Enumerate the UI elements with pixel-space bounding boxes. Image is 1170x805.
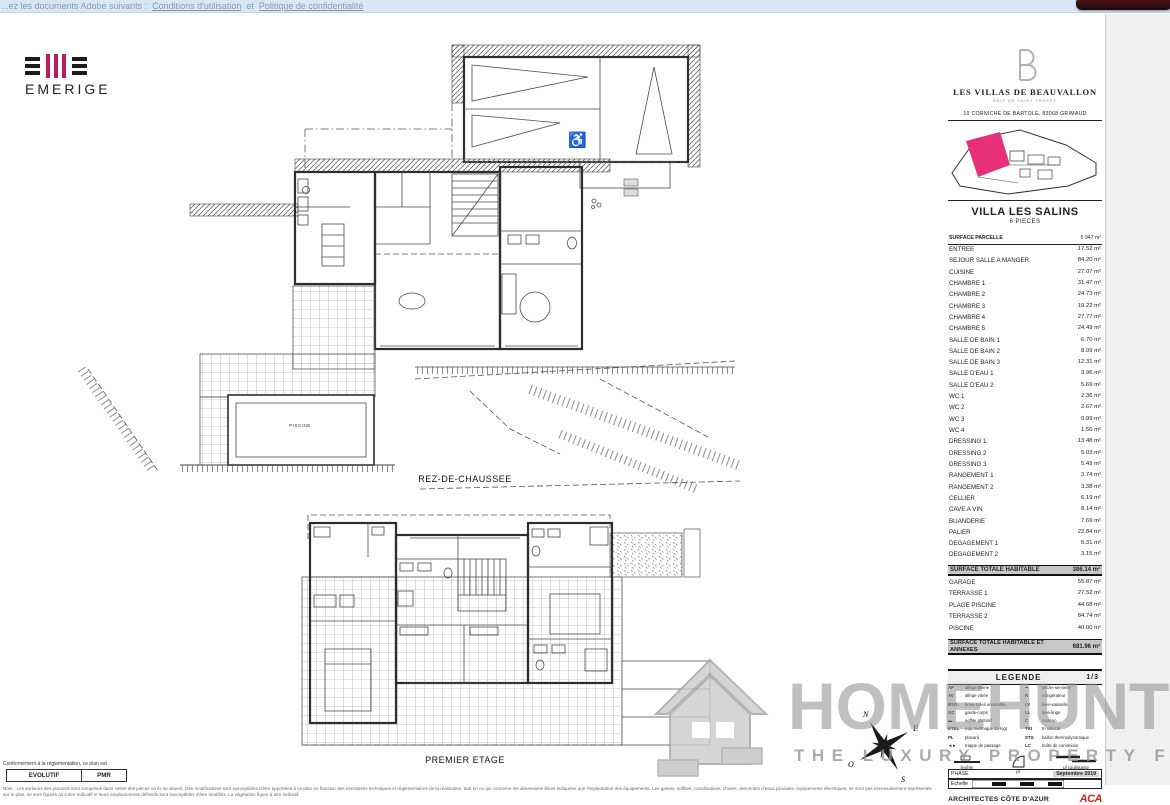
kitchen-island bbox=[322, 224, 344, 266]
privacy-link[interactable]: Politique de confidentialité bbox=[259, 1, 364, 11]
legend-item: PLplacard bbox=[948, 735, 1021, 743]
compass-s: S bbox=[901, 775, 905, 784]
room-row: CHAMBRE 224.73 m² bbox=[948, 291, 1102, 302]
development-subtitle: BAIE DE SAINT TROPEZ bbox=[948, 99, 1102, 103]
villa-type: 6 PIECES bbox=[948, 219, 1102, 225]
legend-item: ETELesp. technique du logt bbox=[948, 726, 1021, 734]
browser-consent-bar: ...ez les documents Adobe suivants : Con… bbox=[0, 0, 1170, 13]
annex-row: TERRASSE 127.52 m² bbox=[948, 590, 1102, 601]
total-all-row: SURFACE TOTALE HABITABLE ET ANNEXES 681.… bbox=[948, 639, 1102, 655]
annex-surface-table: GARAGE55.87 m²TERRASSE 127.52 m²PLAGE PI… bbox=[948, 579, 1102, 636]
legend-item: ◄►trappe de passage bbox=[948, 743, 1021, 751]
legend-grid: APallège pleineAVallège vitréeBSObrise-s… bbox=[948, 685, 1102, 751]
ground-floor-label: REZ-DE-CHAUSSEE bbox=[380, 474, 550, 484]
legend-item: AVallège vitrée bbox=[948, 693, 1021, 701]
stairs bbox=[452, 174, 498, 236]
annex-row: PLAGE PISCINE44.68 m² bbox=[948, 602, 1102, 613]
legend-item: LCboîte de connexion bbox=[1025, 743, 1098, 751]
room-row: SALLE D'EAU 25.69 m² bbox=[948, 382, 1102, 393]
plan-document-page: EMERIGE ♿ bbox=[0, 14, 1105, 785]
room-row: SALLE DE BAIN 16.70 m² bbox=[948, 337, 1102, 348]
first-floor-label: PREMIER ETAGE bbox=[390, 755, 540, 765]
plan-disclaimer: Note : Les surfaces des placards sont co… bbox=[3, 786, 938, 798]
room-row: RANGEMENT 13.74 m² bbox=[948, 472, 1102, 483]
room-surface-table: ENTREE17.52 m²SEJOUR SALLE A MANGER84.20… bbox=[948, 246, 1102, 563]
legend-header: LEGENDE 1/3 bbox=[948, 669, 1102, 685]
annex-row: TERRASSE 284.74 m² bbox=[948, 613, 1102, 624]
room-row: CHAMBRE 319.22 m² bbox=[948, 303, 1102, 314]
legend-item: STGballon thermodynamique bbox=[1025, 735, 1098, 743]
architects-row: ARCHITECTES CÔTE D'AZUR ACA bbox=[948, 793, 1102, 805]
room-row: ENTREE17.52 m² bbox=[948, 246, 1102, 257]
pmr-box: PMR bbox=[82, 769, 127, 782]
room-row: DEGAGEMENT 23.15 m² bbox=[948, 551, 1102, 562]
legend-left-column: APallège pleineAVallège vitréeBSObrise-s… bbox=[948, 685, 1021, 751]
scale-row: Echelle bbox=[948, 779, 1102, 789]
room-row: CHAMBRE 131.47 m² bbox=[948, 280, 1102, 291]
room-row: CUISINE27.07 m² bbox=[948, 269, 1102, 280]
legend-right-column: ━sèche-servietteRréfrigérateurLVlave-vai… bbox=[1025, 685, 1098, 751]
legend-item: LLlave-linge bbox=[1025, 710, 1098, 718]
conformity-boxes: EVOLUTIF PMR bbox=[6, 769, 127, 782]
room-row: RANGEMENT 23.38 m² bbox=[948, 484, 1102, 495]
room-row: WC 41.56 m² bbox=[948, 427, 1102, 438]
room-row: SALLE DE BAIN 28.09 m² bbox=[948, 348, 1102, 359]
legend-item: GCgarde-corps bbox=[948, 710, 1021, 718]
legend-title: LEGENDE bbox=[996, 673, 1042, 682]
window-icon bbox=[952, 754, 982, 764]
room-row: DRESSING 25.03 m² bbox=[948, 450, 1102, 461]
legend-item: Ccuisson bbox=[1025, 718, 1098, 726]
architects-name: ARCHITECTES CÔTE D'AZUR bbox=[948, 796, 1049, 803]
evolutif-box: EVOLUTIF bbox=[6, 769, 82, 782]
compass-o: O bbox=[848, 760, 854, 769]
room-row: SALLE DE BAIN 312.31 m² bbox=[948, 359, 1102, 370]
development-address: 10 CORNICHE DE BARTOLE, 83068 GRIMAUD bbox=[948, 111, 1102, 121]
room-row: DEGAGEMENT 15.31 m² bbox=[948, 540, 1102, 551]
aca-logo: ACA bbox=[1080, 793, 1102, 805]
page-margin-strip bbox=[1105, 14, 1170, 785]
wc-icon bbox=[568, 237, 577, 249]
room-row: SEJOUR SALLE A MANGER84.20 m² bbox=[948, 257, 1102, 268]
site-plan-thumbnail bbox=[948, 123, 1102, 201]
highlighted-lot bbox=[966, 132, 1010, 177]
first-floor-plan bbox=[280, 499, 740, 769]
parcel-surface-row: SURFACE PARCELLE 5 947 m² bbox=[948, 233, 1102, 245]
total-habitable-row: SURFACE TOTALE HABITABLE 386.14 m² bbox=[948, 565, 1102, 576]
legend-item: BSObrise-soleil orientable bbox=[948, 702, 1021, 710]
room-row: BUANDERIE7.69 m² bbox=[948, 518, 1102, 529]
door-swing-icon bbox=[1011, 754, 1025, 768]
annex-row: PISCINE40.00 m² bbox=[948, 625, 1102, 636]
legend-item: APallège pleine bbox=[948, 685, 1021, 693]
room-row: WC 30.99 m² bbox=[948, 416, 1102, 427]
room-row: SALLE D'EAU 13.96 m² bbox=[948, 370, 1102, 381]
consent-text: ...ez les documents Adobe suivants : bbox=[1, 1, 147, 11]
villa-name: VILLA LES SALINS bbox=[948, 206, 1102, 218]
phase-row: PHASE Septembre 2019 bbox=[948, 769, 1102, 779]
compass-n: N bbox=[862, 710, 869, 719]
room-row: CHAMBRE 524.49 m² bbox=[948, 325, 1102, 336]
pool bbox=[228, 395, 374, 465]
room-row: CAVE A VIN8.14 m² bbox=[948, 506, 1102, 517]
page-number: 1/3 bbox=[1086, 674, 1099, 681]
legend-item: Rréfrigérateur bbox=[1025, 693, 1098, 701]
legend-item: LVlave-vaisselle bbox=[1025, 702, 1098, 710]
room-row: DRESSING 113.48 m² bbox=[948, 438, 1102, 449]
room-row: CHAMBRE 427.77 m² bbox=[948, 314, 1102, 325]
compass-e: E bbox=[912, 724, 918, 733]
browser-notification-button[interactable] bbox=[1076, 0, 1170, 10]
legend-item: TRItri sélectif bbox=[1025, 726, 1098, 734]
conformity-note: Conformément à la réglementation, ce pla… bbox=[3, 761, 110, 767]
beauvallon-monogram-icon bbox=[1006, 47, 1046, 85]
room-row: CELLIER6.19 m² bbox=[948, 495, 1102, 506]
sliding-door-icon bbox=[1054, 754, 1098, 764]
room-row: WC 22.67 m² bbox=[948, 404, 1102, 415]
terrace-and-pool bbox=[200, 286, 375, 465]
room-row: WC 12.36 m² bbox=[948, 393, 1102, 404]
legend-item: ▬soffite plafond bbox=[948, 718, 1021, 726]
development-name: LES VILLAS DE BEAUVALLON bbox=[948, 87, 1102, 97]
terms-link[interactable]: Conditions d'utilisation bbox=[152, 1, 241, 11]
room-row: PALIER22.84 m² bbox=[948, 529, 1102, 540]
wheelchair-icon: ♿ bbox=[568, 131, 587, 149]
legend-item: ━sèche-serviette bbox=[1025, 685, 1098, 693]
pool-label: PISCINE bbox=[260, 423, 340, 428]
annex-row: GARAGE55.87 m² bbox=[948, 579, 1102, 590]
consent-separator: et bbox=[246, 1, 254, 11]
ground-floor-plan: ♿ bbox=[40, 39, 740, 499]
scale-bar-icon bbox=[972, 780, 1064, 788]
compass-rose-icon: N E S O bbox=[843, 704, 925, 786]
phase-value: Septembre 2019 bbox=[1053, 771, 1099, 777]
room-row: DRESSING 35.49 m² bbox=[948, 461, 1102, 472]
